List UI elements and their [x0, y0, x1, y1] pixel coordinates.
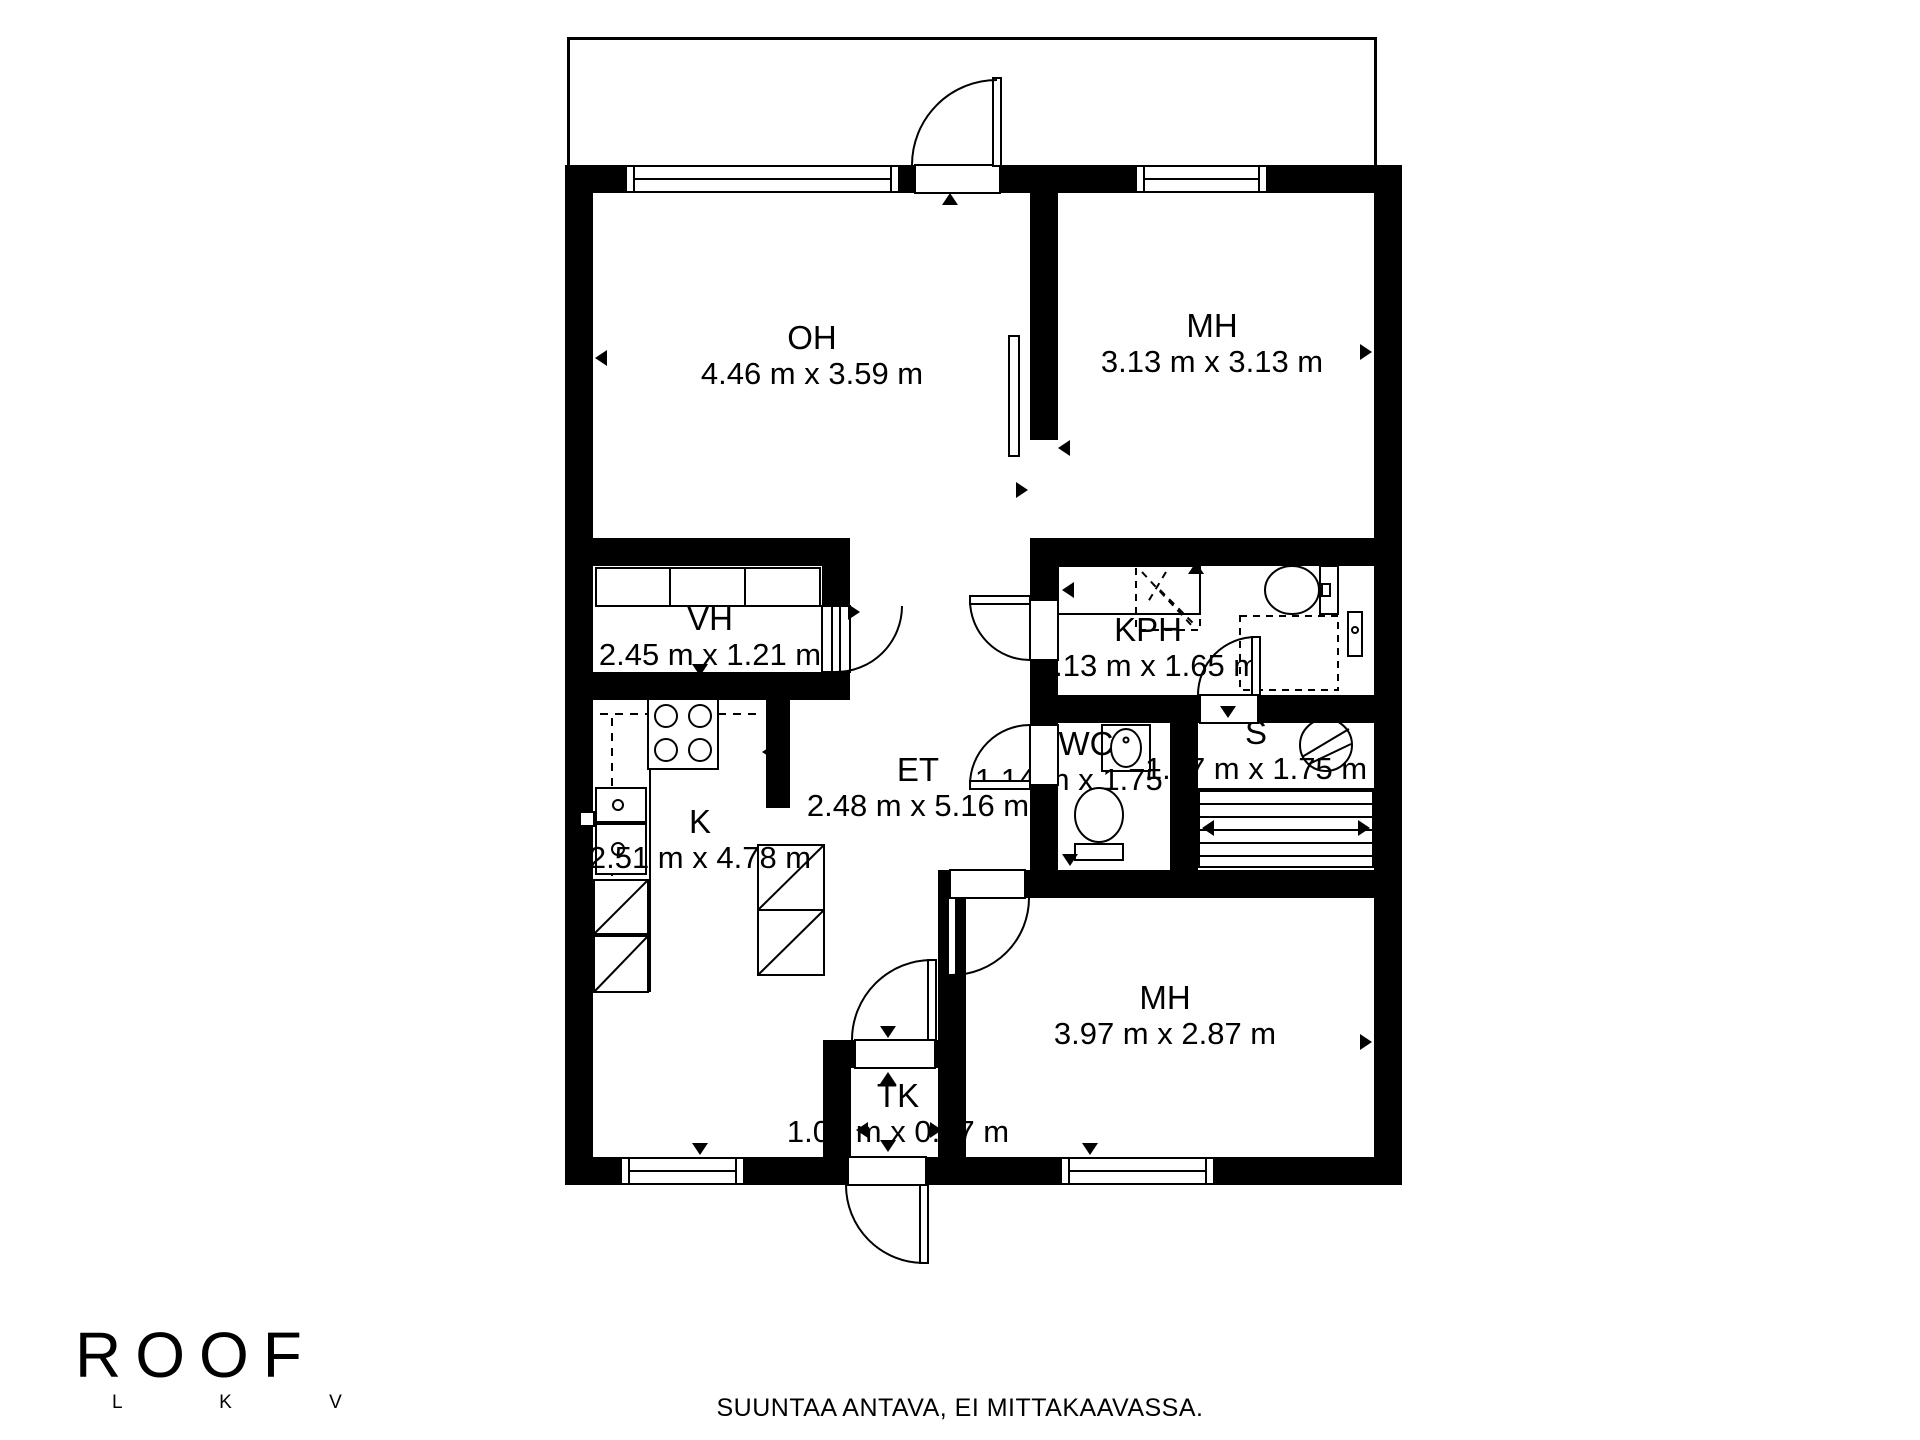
wall-kph-wcs	[1058, 695, 1200, 723]
wall-wcs-bottom-b	[1025, 870, 1374, 898]
wall-kph-left-b	[1030, 660, 1058, 725]
sliding-door-icon	[1008, 335, 1020, 457]
room-label-kph: KPH3.13 m x 1.65 m	[1037, 612, 1259, 684]
wall-tk-top-b	[935, 1040, 966, 1068]
wall-wcs-bottom-a	[938, 870, 950, 898]
fridge-icon	[594, 880, 648, 992]
kph-door-arc	[970, 600, 1030, 660]
wall-oh-vh	[565, 538, 850, 566]
wall-bottom-3	[926, 1157, 1060, 1185]
wall-vh-right	[822, 538, 850, 606]
vh-door-leaf	[832, 606, 840, 672]
vanity-counter	[1058, 566, 1200, 614]
wall-bottom-1	[565, 1157, 620, 1185]
wall-top-2	[900, 165, 915, 193]
wall-mhb-left	[938, 898, 966, 1157]
window-pane	[1069, 1170, 1206, 1172]
wall-tk-top-a	[823, 1040, 855, 1068]
toilet-icon	[1265, 566, 1338, 614]
window-pane	[634, 178, 891, 180]
wall-mh-kph	[1030, 538, 1374, 566]
wall-right	[1374, 165, 1402, 1185]
wall-kph-s	[1258, 695, 1374, 723]
front-door-arc	[846, 1185, 924, 1263]
tk-door-arc	[852, 960, 932, 1040]
roof-lkv-logo: ROOF	[75, 1318, 316, 1392]
room-label-mh-bottom: MH3.97 m x 2.87 m	[1054, 980, 1276, 1052]
window-pane	[629, 1170, 736, 1172]
window-mh-top	[1135, 165, 1268, 193]
wall-bottom-2	[745, 1157, 848, 1185]
tk-door-leaf	[928, 960, 936, 1040]
room-label-k: K2.51 m x 4.78 m	[589, 804, 811, 876]
toilet-icon	[1075, 788, 1123, 860]
wall-wc-s	[1170, 723, 1198, 870]
window-oh	[625, 165, 900, 193]
disclaimer-caption: SUUNTAA ANTAVA, EI MITTAKAAVASSA.	[0, 1394, 1920, 1423]
floor-plan-canvas: OH4.46 m x 3.59 m MH3.13 m x 3.13 m VH2.…	[0, 0, 1920, 1440]
room-label-oh: OH4.46 m x 3.59 m	[701, 320, 923, 392]
room-label-et: ET2.48 m x 5.16 m	[807, 752, 1029, 824]
sauna-bench-icon	[1198, 788, 1374, 868]
room-label-vh: VH2.45 m x 1.21 m	[599, 601, 821, 673]
vh-door-arc	[836, 606, 902, 672]
window-pane	[1144, 178, 1259, 180]
stove-icon	[648, 697, 718, 769]
room-label-mh-top: MH3.13 m x 3.13 m	[1101, 308, 1323, 380]
balcony-outline	[567, 37, 1377, 168]
room-label-tk: TK1.08 m x 0.87 m	[787, 1078, 1009, 1150]
front-door-leaf	[920, 1185, 928, 1263]
window-k	[620, 1157, 745, 1185]
wall-k-et	[766, 672, 790, 808]
doors-layer	[0, 0, 1920, 1440]
window-mh-bottom	[1060, 1157, 1215, 1185]
wall-top-3	[1000, 165, 1135, 193]
fixtures-layer	[0, 0, 1920, 1440]
wall-kph-left-a	[1030, 566, 1058, 600]
wall-oh-mh-divider	[1030, 193, 1058, 440]
shower-mixer-icon	[1348, 612, 1362, 656]
kph-door-leaf	[970, 596, 1030, 604]
wall-bottom-4	[1215, 1157, 1402, 1185]
wall-vh-k	[565, 672, 850, 700]
wall-wc-left	[1030, 785, 1058, 870]
